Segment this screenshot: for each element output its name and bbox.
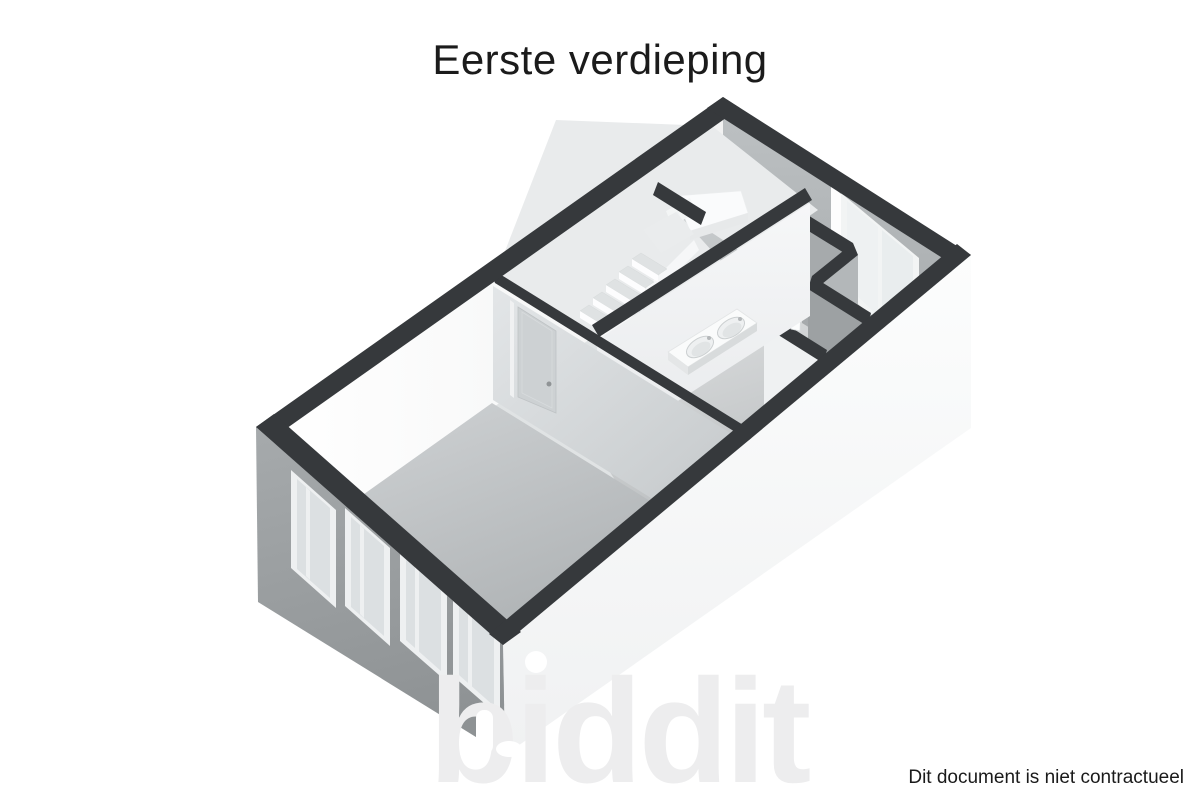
- disclaimer-text: Dit document is niet contractueel: [908, 767, 1184, 789]
- page-title: Eerste verdieping: [0, 36, 1200, 84]
- floor-plan-drawing: biddit: [0, 0, 1200, 801]
- watermark: biddit: [429, 649, 810, 801]
- floor-plan-page: biddit Eerste verdieping Dit document is…: [0, 0, 1200, 801]
- door-handle: [547, 382, 552, 387]
